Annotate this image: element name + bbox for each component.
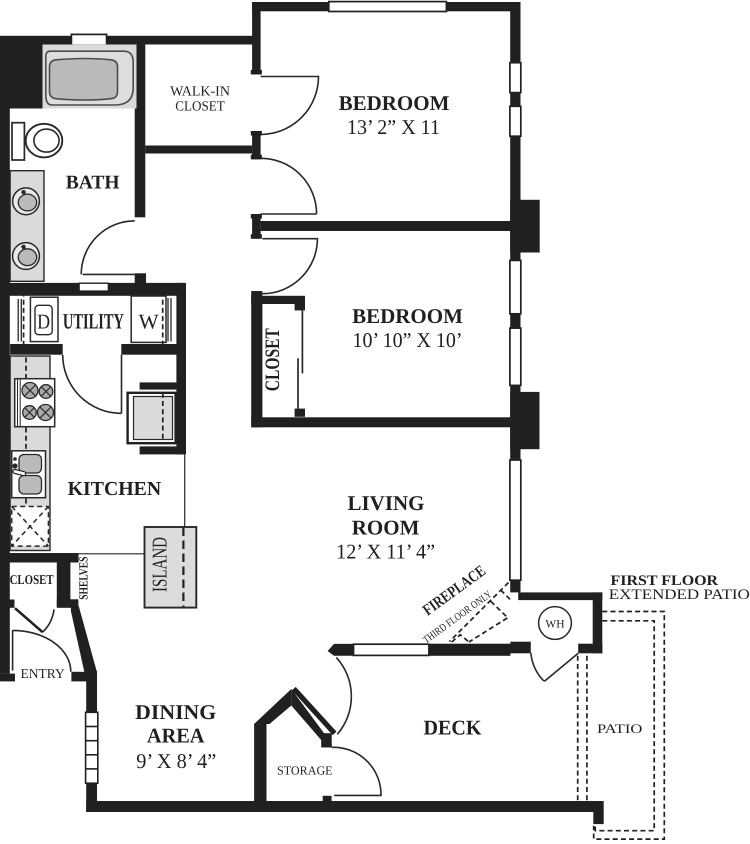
svg-text:DECK: DECK (424, 715, 483, 739)
svg-text:WALK-IN: WALK-IN (170, 85, 230, 100)
svg-text:BEDROOM: BEDROOM (352, 304, 463, 328)
svg-text:12’ X 11’ 4”: 12’ X 11’ 4” (336, 540, 435, 564)
svg-text:STORAGE: STORAGE (277, 764, 333, 778)
svg-text:D: D (37, 309, 50, 333)
svg-text:CLOSET: CLOSET (262, 328, 284, 391)
svg-text:WH: WH (545, 619, 564, 631)
svg-text:UTILITY: UTILITY (63, 309, 124, 334)
svg-text:BEDROOM: BEDROOM (339, 91, 450, 115)
svg-text:9’ X 8’ 4”: 9’ X 8’ 4” (136, 749, 216, 773)
svg-text:W: W (139, 309, 159, 333)
svg-text:DINING: DINING (135, 700, 216, 724)
svg-text:CLOSET: CLOSET (10, 572, 54, 587)
svg-text:13’ 2” X 11: 13’ 2” X 11 (347, 115, 440, 139)
svg-text:ENTRY: ENTRY (20, 666, 65, 681)
svg-text:LIVING: LIVING (347, 491, 424, 515)
svg-text:BATH: BATH (66, 173, 120, 194)
svg-text:AREA: AREA (147, 723, 205, 747)
svg-text:10’ 10” X 10’: 10’ 10” X 10’ (353, 328, 463, 352)
svg-text:PATIO: PATIO (597, 721, 642, 736)
svg-text:KITCHEN: KITCHEN (68, 478, 162, 500)
svg-text:ISLAND: ISLAND (148, 537, 172, 592)
svg-text:EXTENDED PATIO: EXTENDED PATIO (609, 587, 750, 603)
svg-text:CLOSET: CLOSET (175, 100, 225, 115)
svg-text:ROOM: ROOM (352, 516, 420, 540)
svg-text:SHELVES: SHELVES (77, 557, 91, 600)
